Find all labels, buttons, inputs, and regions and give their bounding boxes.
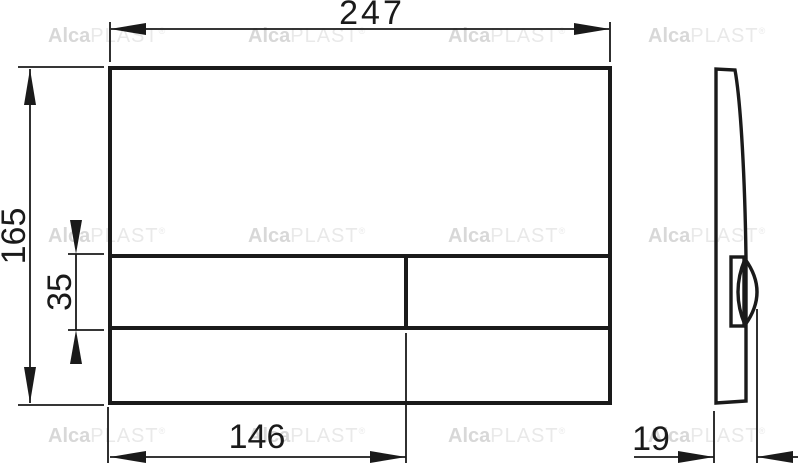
arrowhead-left [110, 451, 146, 463]
dim-label-plate-width: 247 [339, 0, 405, 32]
watermark: AlcaPLAST® [648, 225, 766, 247]
dim-label-button-width: 146 [229, 418, 286, 456]
arrowhead-up [70, 330, 82, 364]
watermark: AlcaPLAST® [448, 225, 566, 247]
arrowhead-top [24, 69, 36, 105]
watermark: AlcaPLAST® [248, 225, 366, 247]
arrowhead-right-inward [678, 451, 714, 463]
arrowhead-bottom [24, 367, 36, 403]
arrowhead-right [574, 23, 610, 35]
arrowhead-right [370, 451, 406, 463]
drawing-canvas: AlcaPLAST® AlcaPLAST® AlcaPLAST® AlcaPLA… [0, 0, 800, 466]
arrowhead-left-inward [757, 451, 793, 463]
watermark: AlcaPLAST® [48, 225, 166, 247]
dim-label-plate-height: 165 [0, 208, 33, 265]
dim-label-button-strip-height: 35 [41, 273, 79, 311]
flush-plate-technical-drawing: AlcaPLAST® AlcaPLAST® AlcaPLAST® AlcaPLA… [0, 0, 800, 466]
dim-label-plate-depth: 19 [632, 420, 670, 458]
watermark: AlcaPLAST® [648, 25, 766, 47]
watermark: AlcaPLAST® [448, 425, 566, 447]
watermark: AlcaPLAST® [48, 425, 166, 447]
